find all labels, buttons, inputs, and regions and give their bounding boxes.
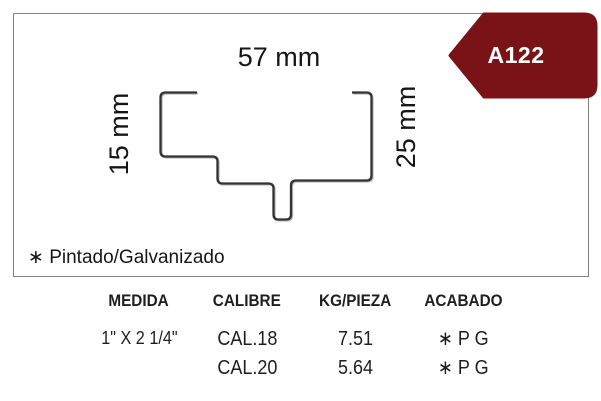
dimension-label-width: 57 mm xyxy=(219,42,339,73)
column-header-acabado: ACABADO xyxy=(409,292,517,325)
cell-calibre-row1: CAL.18 xyxy=(193,325,301,354)
column-header-kg-pieza: KG/PIEZA xyxy=(301,292,409,325)
product-code-badge: A122 xyxy=(448,12,598,99)
cell-calibre-row2: CAL.20 xyxy=(193,354,301,383)
cell-medida-row2 xyxy=(85,354,193,383)
spec-table: MEDIDA CALIBRE KG/PIEZA ACABADO 1" X 2 1… xyxy=(85,292,517,383)
cell-kg-pieza-row2: 5.64 xyxy=(301,354,409,383)
spec-sheet-page: 57 mm 15 mm 25 mm ∗ Pintado/Galvanizado … xyxy=(0,0,601,401)
cell-kg-pieza-row1: 7.51 xyxy=(301,325,409,354)
dimension-label-left-height: 15 mm xyxy=(104,74,134,194)
cell-medida-value: 1" X 2 1/4" xyxy=(85,325,193,354)
column-header-medida: MEDIDA xyxy=(85,292,193,325)
finish-note: ∗ Pintado/Galvanizado xyxy=(28,246,225,269)
cell-acabado-row1: ∗ P G xyxy=(409,325,517,354)
cell-acabado-row2: ∗ P G xyxy=(409,354,517,383)
dimension-label-right-height: 25 mm xyxy=(391,67,421,187)
product-code-label: A122 xyxy=(448,12,598,99)
column-header-calibre: CALIBRE xyxy=(193,292,301,325)
